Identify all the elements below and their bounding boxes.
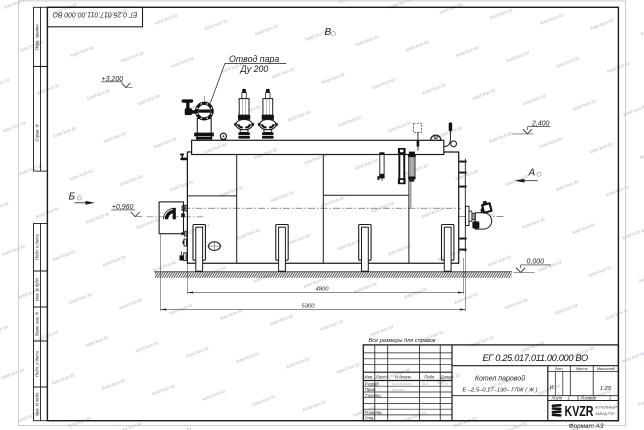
svg-text:Е –2,5–0,17–130– ГЛЖ ( Ж ): Е –2,5–0,17–130– ГЛЖ ( Ж ) bbox=[462, 387, 537, 393]
svg-text:Инв. N дубл.: Инв. N дубл. bbox=[35, 277, 40, 301]
svg-text:Котел паровой: Котел паровой bbox=[475, 374, 525, 382]
svg-text:ЕГ 0.25.017.011.00.000 ВО: ЕГ 0.25.017.011.00.000 ВО bbox=[52, 11, 137, 18]
svg-text:0,000: 0,000 bbox=[527, 258, 545, 265]
svg-text:5300: 5300 bbox=[302, 303, 316, 309]
svg-text:Инв. N подл.: Инв. N подл. bbox=[35, 392, 40, 416]
svg-text:Колмогоров: Колмогоров bbox=[392, 382, 412, 386]
svg-text:Лист: Лист bbox=[375, 374, 387, 379]
svg-text:Пров.: Пров. bbox=[365, 387, 376, 392]
svg-text:ЗАВОД РЗП: ЗАВОД РЗП bbox=[595, 412, 615, 416]
svg-text:Вид: Вид bbox=[422, 382, 428, 386]
svg-text:Подп. и дата: Подп. и дата bbox=[35, 350, 40, 376]
svg-text:Лист: Лист bbox=[551, 395, 563, 400]
svg-text:Ду 200: Ду 200 bbox=[240, 64, 269, 74]
svg-text:9.04: 9.04 bbox=[441, 382, 448, 386]
svg-text:В: В bbox=[325, 27, 332, 38]
svg-text:Подп.: Подп. bbox=[424, 374, 435, 379]
svg-text:Утв.: Утв. bbox=[365, 416, 375, 421]
svg-text:И: И bbox=[550, 385, 554, 391]
svg-text:А: А bbox=[528, 168, 536, 179]
svg-text:Подп. и дата: Подп. и дата bbox=[35, 234, 40, 260]
svg-text:КОТЕЛЬНЫЙ: КОТЕЛЬНЫЙ bbox=[595, 405, 617, 409]
svg-text:Справ. N: Справ. N bbox=[35, 124, 40, 141]
svg-text:Формат А3: Формат А3 bbox=[569, 423, 604, 430]
svg-text:Н.контр.: Н.контр. bbox=[365, 410, 383, 415]
svg-text:Листов: Листов bbox=[580, 395, 597, 400]
svg-text:Т.контр.: Т.контр. bbox=[365, 393, 382, 398]
svg-text:Перв. примен.: Перв. примен. bbox=[35, 23, 40, 50]
svg-text:Взам. инв. N: Взам. инв. N bbox=[35, 312, 40, 336]
svg-text:N докум.: N докум. bbox=[395, 374, 412, 379]
svg-text:Отвод пара: Отвод пара bbox=[229, 54, 279, 64]
svg-text:Разраб.: Разраб. bbox=[365, 381, 380, 386]
svg-text:ЕГ 0.25.017.011.00.000 ВО: ЕГ 0.25.017.011.00.000 ВО bbox=[482, 353, 588, 363]
svg-text:Масса: Масса bbox=[576, 366, 588, 371]
svg-text:Дата: Дата bbox=[440, 374, 453, 379]
svg-text:Б: Б bbox=[69, 192, 76, 203]
svg-text:Масштаб: Масштаб bbox=[597, 366, 616, 371]
svg-text:1:25: 1:25 bbox=[600, 386, 612, 392]
svg-text:Лит.: Лит. bbox=[553, 366, 563, 371]
svg-text:KVZR: KVZR bbox=[565, 404, 594, 420]
svg-text:Вернер: Вернер bbox=[392, 388, 404, 392]
svg-text:1: 1 bbox=[568, 395, 570, 400]
svg-text:Изм.: Изм. bbox=[365, 374, 374, 379]
svg-text:4800: 4800 bbox=[316, 286, 330, 292]
svg-text:Все размеры для справок: Все размеры для справок bbox=[369, 338, 436, 344]
